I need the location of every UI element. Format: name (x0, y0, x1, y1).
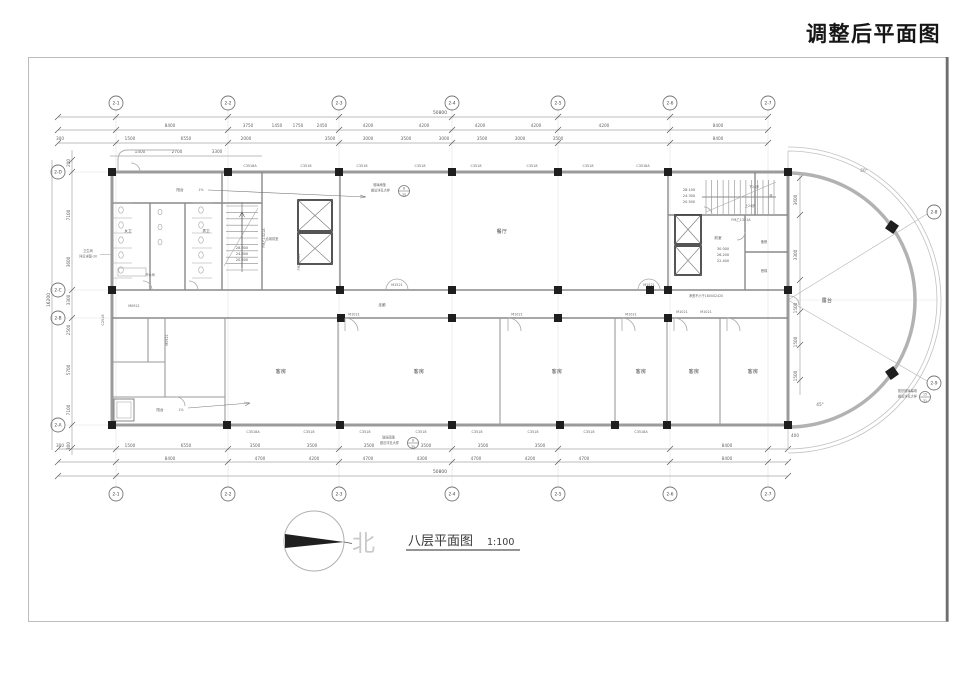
dim-label: 3500 (553, 136, 564, 141)
room-label-shared-ante: 合用前室 (266, 236, 279, 241)
dim-label: 4200 (363, 123, 374, 128)
stair-right (702, 180, 776, 214)
window-tag: C3518 (527, 164, 538, 168)
grid-bubble-label: 2-4 (448, 492, 455, 498)
callout-text: 做法详见大样 (371, 188, 391, 193)
dim-label: 6550 (181, 136, 192, 141)
dim-label: 4200 (531, 123, 542, 128)
grid-bubble-label: 2-6 (666, 492, 673, 498)
window-tag: C3518A (246, 430, 260, 434)
detail-number: 15 (923, 393, 927, 397)
grid-bubble-label: 2-4 (448, 101, 455, 107)
dim-label: 8400 (722, 443, 733, 448)
callout-text: 玻璃雨篷 (373, 182, 387, 187)
dim-label: 3000 (515, 136, 526, 141)
callout-text: 弧形玻璃幕墙 (898, 388, 918, 393)
detail-number: 8 (403, 187, 405, 191)
window-tag: C3518 (583, 164, 594, 168)
level-mark: 24.800 (236, 252, 248, 256)
dim-label: 4700 (471, 456, 482, 461)
dim-label: 3500 (364, 443, 375, 448)
grid-bubble-label: 2-2 (224, 492, 231, 498)
window-tag: C3518 (584, 430, 595, 434)
dim-label: 3500 (421, 443, 432, 448)
door-tag: M1021 (625, 313, 637, 317)
grid-bubble-label: 2-C (54, 288, 61, 294)
dim-label: 3500 (478, 443, 489, 448)
dim-label: 4200 (309, 456, 320, 461)
callout-text: 做法详见大样 (898, 394, 918, 399)
dim-label: 1500 (125, 443, 136, 448)
window-tag: C3518 (416, 430, 427, 434)
level-mark: 28.300 (236, 246, 248, 250)
dim-label: 16200 (46, 293, 52, 307)
radius-lines (788, 214, 927, 381)
dim-label: 8400 (165, 123, 176, 128)
dim-label: 7100 (66, 209, 71, 220)
detail-number: 35 (411, 445, 415, 449)
dim-label: 200 (66, 159, 71, 167)
grid-bubble-label: 2-5 (554, 492, 561, 498)
level-mark: 24.300 (683, 194, 695, 198)
grid-bubble-label: 2-3 (335, 101, 342, 107)
window-tag: C3518 (528, 430, 539, 434)
grid-bubble-label: 2-1 (112, 101, 119, 107)
window-tag: C3518 (472, 430, 483, 434)
room-label-guest: 客房 (636, 368, 647, 375)
north-compass: 北 (284, 511, 375, 571)
dim-label: 5700 (66, 364, 71, 375)
grid-bubbles (51, 96, 941, 501)
door-tag: M1021 (700, 310, 712, 314)
room-label-guest: 客房 (689, 368, 700, 375)
grid-bubble-label: 2-5 (554, 101, 561, 107)
toilet-note: 卫生间 详见详图-30 (79, 248, 112, 259)
elevator-x-marks (298, 200, 701, 275)
north-label: 北 (352, 531, 375, 557)
grid-bubble-label: 2-6 (666, 101, 673, 107)
level-mark: 26.200 (717, 253, 729, 257)
door-tag: M1021 (348, 313, 360, 317)
room-label-pantry: 备餐 (761, 239, 768, 244)
window-tag: C3518 (357, 164, 368, 168)
level-mark: 22.400 (717, 259, 729, 263)
dimension-labels-top: 50800 8400 3750 1450 1750 2450 4200 4200… (56, 110, 724, 154)
window-tag: C3518 (301, 164, 312, 168)
dim-label: 3600 (793, 194, 798, 205)
door-tag: M1521 (391, 283, 403, 287)
drawing-caption: 八层平面图 1:100 (406, 534, 520, 550)
window-tag: C3518A (636, 164, 650, 168)
dim-label: 2450 (317, 123, 328, 128)
stair-up-note: 上24步 (745, 203, 755, 208)
dim-label: 3600 (66, 256, 71, 267)
canopy-callout-top: 8 35 玻璃雨篷 做法详见大样 (371, 182, 410, 197)
dim-label: 1500 (793, 302, 798, 313)
level-mark: 20.500 (236, 258, 248, 262)
grid-bubble-label: 2-2 (224, 101, 231, 107)
dim-label: 50800 (433, 469, 447, 475)
door-tag: FM乙1021 (296, 254, 301, 271)
dim-label: 3500 (401, 136, 412, 141)
grid-bubble-label: 2-B (54, 316, 61, 322)
room-label-guest: 客房 (414, 368, 425, 375)
sheet-title: 调整后平面图 (806, 22, 941, 46)
dim-label: 1500 (793, 370, 798, 381)
room-label-wc-female: 女卫 (124, 228, 132, 233)
floor-plan-sheet: 50800 8400 3750 1450 1750 2450 4200 4200… (0, 0, 980, 687)
dimension-labels-bottom: 300 1500 6550 3500 3500 3500 3500 3500 3… (56, 443, 733, 475)
window-tag: C3518A (243, 164, 257, 168)
detail-number: 8 (412, 439, 414, 443)
window-tag: C3518 (360, 430, 371, 434)
dim-label: 3300 (793, 249, 798, 260)
dim-label: 6550 (181, 443, 192, 448)
door-tag: M1021 (676, 310, 688, 314)
window-tag: C3518A (634, 430, 648, 434)
level-mark: 28.100 (683, 188, 695, 192)
columns (108, 168, 899, 429)
grid-bubble-label: 2-8 (930, 210, 937, 216)
stair-down-note: 下24步 (749, 184, 759, 189)
room-label-ante: 前室 (714, 235, 722, 240)
dim-label: 7100 (66, 404, 71, 415)
caption-label: 八层平面图 (408, 534, 473, 549)
elevator-shafts (298, 200, 701, 275)
grid-lines (65, 110, 938, 487)
callout-text: 做法详见大样 (380, 440, 400, 445)
dim-label: 1750 (293, 123, 304, 128)
dim-label: 2500 (66, 324, 71, 335)
dim-label: 8400 (722, 456, 733, 461)
room-label-terrace: 露台 (822, 297, 833, 304)
dim-label: 50800 (433, 110, 447, 116)
door-tag: FM乙1321A (731, 217, 751, 222)
window-tag: C2518 (101, 315, 105, 326)
grid-bubble-label: 2-7 (764, 101, 771, 107)
room-label-balcony: 阳台 (176, 187, 184, 192)
dim-label: 4200 (525, 456, 536, 461)
grid-bubble-label: 2-1 (112, 492, 119, 498)
room-labels: 餐厅 客房 客房 客房 客房 客房 客房 走廊 阳台 1% 阳台 1% 露台 前… (124, 187, 832, 412)
dim-label: 4300 (417, 456, 428, 461)
dim-label: 2000 (241, 136, 252, 141)
opening-tags: C3518A C3518 C3518 C3518 C3518 C3518 C35… (101, 164, 751, 434)
room-label-hall: 餐厅 (497, 228, 508, 235)
door-tag: M0921 (128, 304, 140, 308)
note-text: 详见详图-30 (79, 254, 97, 259)
dimension-labels-left: 200 7100 3600 3300 2500 5700 7100 300 16… (46, 159, 71, 450)
detail-number: 31 (923, 399, 927, 403)
corner-shaft-inner (117, 402, 131, 418)
door-tag: M1021 (511, 313, 523, 317)
door-clearance-note: 净宽不小于1800X2420 (689, 293, 723, 298)
window-tag: C3518 (415, 164, 426, 168)
dim-label: 4200 (419, 123, 430, 128)
dim-label: 3500 (477, 136, 488, 141)
dim-label: 3500 (325, 136, 336, 141)
dim-label: 3500 (535, 443, 546, 448)
dim-label: 300 (66, 442, 71, 450)
dim-label: 8400 (713, 136, 724, 141)
room-label-wc-male: 男卫 (202, 228, 210, 233)
detail-callouts: 8 35 玻璃雨篷 做法详见大样 8 35 玻璃雨篷 做法详见大样 15 31 … (79, 182, 930, 449)
dim-label: 4700 (363, 456, 374, 461)
dim-label: 3000 (363, 136, 374, 141)
room-label-guest: 客房 (748, 368, 759, 375)
level-mark: 30.000 (717, 247, 729, 251)
grid-bubble-label: 2-7 (764, 492, 771, 498)
room-label-guest: 客房 (552, 368, 563, 375)
note-text: 卫生间 (83, 248, 93, 253)
level-mark: 20.500 (683, 200, 695, 204)
dim-label: 3500 (307, 443, 318, 448)
dim-label: 4200 (599, 123, 610, 128)
dim-label: 45° (816, 402, 823, 407)
dim-label: 400 (791, 433, 799, 438)
dim-label: 8400 (165, 456, 176, 461)
dim-label: 4700 (255, 456, 266, 461)
window-tag: C3518 (471, 164, 482, 168)
grid-bubble-labels: 2-1 2-2 2-3 2-4 2-5 2-6 2-7 2-1 2-2 2-3 … (54, 101, 938, 498)
dim-label: 3000 (439, 136, 450, 141)
room-label-hot-water: 开水间 (145, 272, 155, 277)
toilet-fixtures (112, 203, 212, 278)
top-left-balcony (118, 150, 176, 172)
dim-label: 300 (56, 136, 64, 141)
grid-bubble-label: 2-A (54, 423, 61, 429)
detail-number: 35 (402, 193, 406, 197)
dim-label: 4200 (475, 123, 486, 128)
dim-label: 4700 (579, 456, 590, 461)
slope-label: 1% (178, 408, 183, 412)
dim-label: 8400 (713, 123, 724, 128)
dim-label: 1500 (793, 336, 798, 347)
door-tag: FM乙1321A (261, 228, 266, 248)
caption-scale: 1:100 (487, 537, 514, 548)
outer-walls (112, 172, 788, 425)
canopy-callout-bottom: 8 35 玻璃雨篷 做法详见大样 (380, 435, 419, 450)
door-tag: M0921 (165, 334, 169, 346)
callout-text: 玻璃雨篷 (382, 435, 396, 440)
dim-label: 1500 (125, 136, 136, 141)
room-label-balcony: 阳台 (156, 407, 164, 412)
grid-bubble-label: 2-9 (930, 381, 937, 387)
window-tag: C3518 (304, 430, 315, 434)
room-label-dumbwaiter: 餐梯 (761, 268, 768, 273)
slope-label: 1% (198, 188, 203, 192)
dim-label: 3300 (66, 294, 71, 305)
door-tag: M1521 (643, 283, 655, 287)
dim-label: 3300 (212, 149, 223, 154)
dim-label: 3750 (243, 123, 254, 128)
grid-bubble-label: 2-3 (335, 492, 342, 498)
north-needle (285, 534, 344, 548)
dim-label: 1450 (272, 123, 283, 128)
dim-label: 3500 (250, 443, 261, 448)
grid-bubble-label: 2-D (54, 170, 62, 176)
room-label-corridor: 走廊 (378, 302, 386, 307)
room-label-guest: 客房 (276, 368, 287, 375)
dim-label: 300 (56, 443, 64, 448)
